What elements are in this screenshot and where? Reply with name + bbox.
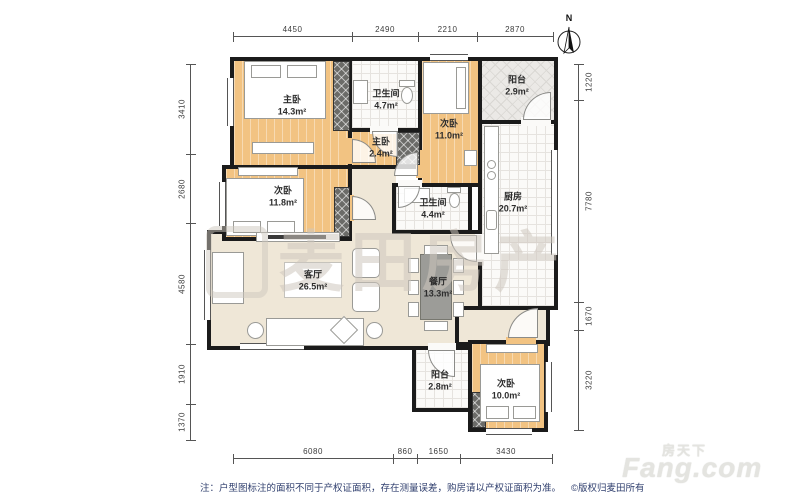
- dim-right-2: 7780: [578, 100, 579, 302]
- window-master: [227, 78, 234, 126]
- dim-bottom-2: 860: [393, 458, 417, 459]
- pouf-icon: [352, 282, 380, 312]
- tv-cabinet-icon: [486, 344, 538, 353]
- label-balcony-north: 阳台2.9m²: [505, 74, 529, 97]
- wardrobe-master: [333, 61, 350, 131]
- opening-corridor-living: [352, 226, 392, 234]
- tv-cabinet-icon: [238, 167, 298, 176]
- sink-icon: [486, 210, 497, 230]
- north-compass-icon: N: [552, 14, 586, 62]
- window-bedroom3: [430, 54, 468, 61]
- pillow-icon: [486, 406, 509, 419]
- dresser-icon: [252, 142, 314, 154]
- label-bathroom-1: 卫生间4.7m²: [372, 88, 399, 111]
- chair-icon: [424, 245, 448, 255]
- tv-icon: [268, 235, 326, 239]
- window-kitchen: [551, 150, 558, 255]
- pillow-icon: [287, 65, 317, 78]
- chair-icon: [453, 280, 464, 295]
- dim-right-3: 1670: [578, 302, 579, 330]
- dim-bottom-3: 1650: [417, 458, 460, 459]
- pillow-icon: [513, 406, 536, 419]
- dim-left-5: 1370: [190, 404, 191, 440]
- chair-icon: [424, 321, 448, 331]
- window-bedroom4-south: [486, 428, 532, 435]
- window-living: [204, 250, 211, 320]
- label-bedroom-3: 次卧11.0m²: [435, 118, 463, 141]
- pillow-icon: [456, 67, 466, 109]
- chair-icon: [453, 302, 464, 317]
- floorplan-image: 主卧14.3m² 次卧11.8m² 卫生间4.7m² 主卧2.4m² 次卧11.…: [0, 0, 785, 500]
- side-table-icon: [366, 322, 383, 339]
- label-dining-room: 餐厅13.3m²: [424, 276, 453, 299]
- dim-bottom-4: 3430: [460, 458, 552, 459]
- dim-left-1: 3410: [190, 64, 191, 154]
- pillow-icon: [251, 65, 281, 78]
- dim-top-3: 2210: [418, 36, 477, 37]
- dim-bottom-1: 6080: [233, 458, 393, 459]
- dim-top-1: 4450: [233, 36, 352, 37]
- disclaimer-note: 注：户型图标注的面积不同于产权证面积，存在测量误差，购房请以产权证面积为准。©版…: [200, 480, 645, 494]
- label-bathroom-2: 卫生间4.4m²: [419, 197, 446, 220]
- label-master-bedroom: 主卧14.3m²: [278, 94, 307, 117]
- washbasin-icon: [353, 80, 368, 104]
- label-balcony-south: 阳台2.8m²: [428, 369, 452, 392]
- label-master-passage: 主卧2.4m²: [369, 136, 393, 159]
- side-table-icon: [247, 322, 264, 339]
- dim-left-3: 4580: [190, 223, 191, 344]
- chair-icon: [453, 258, 464, 273]
- dim-top-2: 2490: [352, 36, 418, 37]
- opening-dining-entry: [476, 312, 486, 340]
- toilet-icon: [449, 193, 460, 208]
- dim-right-1: 1220: [578, 64, 579, 100]
- toilet-tank-icon: [399, 80, 415, 87]
- label-living-room: 客厅26.5m²: [299, 269, 328, 292]
- kitchen-counter-icon: [484, 126, 499, 254]
- chair-icon: [408, 258, 419, 273]
- armchair-icon: [212, 252, 244, 304]
- stove-burner-icon: [487, 171, 496, 180]
- copyright-text: ©版权归麦田所有: [571, 483, 645, 494]
- wardrobe-bedroom2: [334, 187, 350, 237]
- dim-left-4: 1910: [190, 344, 191, 404]
- window-bedroom4: [545, 362, 552, 412]
- nightstand-icon: [464, 150, 477, 166]
- label-bedroom-4: 次卧10.0m²: [492, 378, 521, 401]
- pouf-icon: [352, 248, 380, 278]
- chair-icon: [408, 280, 419, 295]
- dim-left-2: 2680: [190, 154, 191, 223]
- chair-icon: [408, 302, 419, 317]
- window-bedroom2: [219, 182, 226, 226]
- dim-right-4: 3220: [578, 330, 579, 430]
- dim-top-4: 2870: [477, 36, 553, 37]
- toilet-icon: [401, 87, 413, 104]
- note-text: 注：户型图标注的面积不同于产权证面积，存在测量误差，购房请以产权证面积为准。: [200, 483, 561, 494]
- stove-burner-icon: [487, 160, 496, 169]
- label-kitchen: 厨房20.7m²: [499, 191, 528, 214]
- label-bedroom-2: 次卧11.8m²: [269, 185, 297, 208]
